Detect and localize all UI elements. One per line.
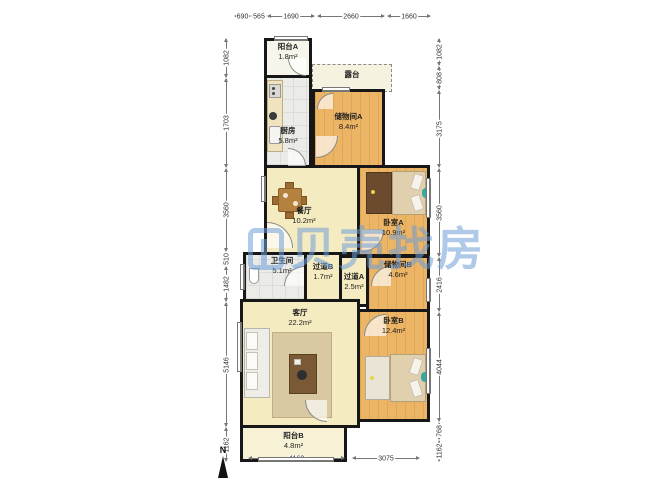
label-storage-a: 储物间A 8.4m² — [312, 112, 385, 132]
kettle-icon — [269, 112, 277, 120]
window — [426, 178, 431, 218]
room-area: 2.5m² — [339, 282, 369, 292]
room-area: 4.6m² — [366, 270, 430, 280]
dim-right-3: 3560 — [435, 168, 444, 257]
label-living: 客厅 22.2m² — [240, 308, 360, 328]
dim-left-3: 510 — [222, 252, 231, 266]
wardrobe-a — [366, 172, 392, 214]
dim-left-5: 5146 — [222, 302, 231, 427]
dim-right-1: 808 — [435, 66, 444, 90]
burner-icon — [272, 92, 275, 95]
room-name: 卧室B — [357, 316, 430, 326]
room-area: 10.2m² — [264, 216, 344, 226]
room-area: 10.9m² — [357, 228, 430, 238]
label-corridor-a: 过道A 2.5m² — [339, 272, 369, 292]
room-area: 5.1m² — [252, 266, 312, 276]
window — [261, 176, 266, 202]
room-name: 储物间A — [312, 112, 385, 122]
dim-right-5: 4044 — [435, 312, 444, 422]
sofa-cushion — [246, 372, 258, 390]
room-name: 卫生间 — [252, 256, 312, 266]
room-name: 餐厅 — [264, 206, 344, 216]
label-bedroom-a: 卧室A 10.9m² — [357, 218, 430, 238]
dim-right-6: 768 — [435, 422, 444, 440]
room-area: 12.4m² — [357, 326, 430, 336]
dim-top-3: 2660 — [317, 12, 385, 21]
room-area: 4.8m² — [240, 441, 347, 451]
label-balcony-a: 阳台A 1.8m² — [266, 42, 310, 62]
label-dining: 餐厅 10.2m² — [264, 206, 344, 226]
room-name: 客厅 — [240, 308, 360, 318]
window — [274, 36, 308, 41]
wardrobe-knob-icon — [371, 190, 375, 194]
room-name: 储物间B — [366, 260, 430, 270]
window — [426, 348, 431, 394]
room-area: 8.4m² — [312, 122, 385, 132]
room-area: 1.8m² — [266, 52, 310, 62]
label-terrace: 露台 — [312, 70, 392, 80]
label-bedroom-b: 卧室B 12.4m² — [357, 316, 430, 336]
window — [258, 457, 334, 462]
dim-top-1: 565 — [251, 12, 267, 21]
room-name: 阳台A — [266, 42, 310, 52]
label-bathroom: 卫生间 5.1m² — [252, 256, 312, 276]
dim-top-0: 690 — [234, 12, 251, 21]
dim-right-7: 1162 — [435, 440, 444, 462]
room-name: 过道A — [339, 272, 369, 282]
tray-icon — [294, 359, 301, 365]
room-name: 过道B — [304, 262, 342, 272]
room-name: 阳台B — [240, 431, 347, 441]
room-area: 1.7m² — [304, 272, 342, 282]
plant-icon — [297, 370, 307, 380]
dim-left-0: 1082 — [222, 38, 231, 78]
wardrobe-b — [365, 356, 390, 400]
compass: N — [210, 446, 236, 478]
dim-top-4: 1660 — [387, 12, 431, 21]
compass-needle-icon — [218, 456, 228, 478]
room-area: 22.2m² — [240, 318, 360, 328]
room-name: 卧室A — [357, 218, 430, 228]
north-label: N — [210, 446, 236, 455]
dim-right-4: 2416 — [435, 257, 444, 312]
stove-icon — [269, 84, 281, 98]
dim-right-0: 1082 — [435, 38, 444, 66]
dim-left-1: 1703 — [222, 78, 231, 168]
window — [322, 87, 350, 92]
plate-icon — [283, 193, 288, 198]
dim-right-2: 3175 — [435, 90, 444, 168]
label-corridor-b: 过道B 1.7m² — [304, 262, 342, 282]
label-balcony-b: 阳台B 4.8m² — [240, 431, 347, 451]
window — [240, 264, 245, 290]
label-storage-b: 储物间B 4.6m² — [366, 260, 430, 280]
sofa-cushion — [246, 352, 258, 370]
dim-bottom-1: 3075 — [352, 454, 420, 463]
floor-plan: 阳台A 1.8m² 厨房 5.8m² 露台 储物间A 8.4m² 餐厅 10.2… — [0, 0, 666, 487]
room-name: 厨房 — [266, 126, 310, 136]
dim-left-4: 1482 — [222, 266, 231, 302]
dim-top-2: 1690 — [267, 12, 315, 21]
label-kitchen: 厨房 5.8m² — [266, 126, 310, 146]
sofa-cushion — [246, 332, 258, 350]
dim-left-2: 3560 — [222, 168, 231, 252]
wardrobe-knob-icon — [370, 376, 374, 380]
window — [237, 322, 242, 372]
room-area: 5.8m² — [266, 136, 310, 146]
window — [426, 278, 431, 302]
room-name: 露台 — [312, 70, 392, 80]
burner-icon — [272, 87, 275, 90]
